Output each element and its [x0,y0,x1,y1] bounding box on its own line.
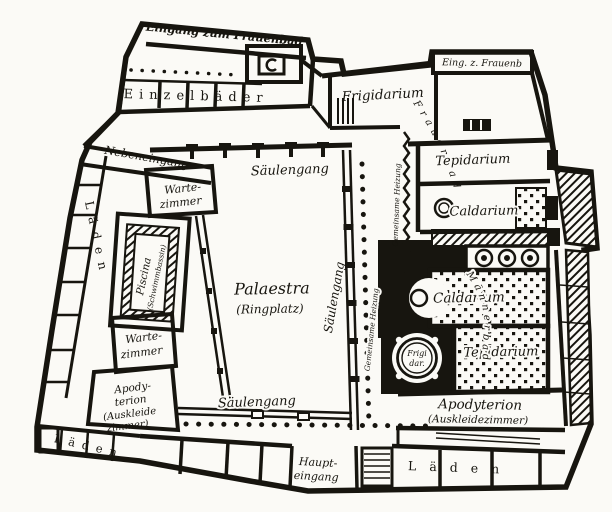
caldarium-frauen-hypocaust [516,188,546,228]
label-tepidarium-frauen: Tepidarium [435,152,510,170]
stylobate-post [298,413,309,420]
label-haupteingang-2: eingang [293,469,338,484]
furnace-block [432,246,466,270]
labrum-basin [411,290,427,306]
label-frigidar-1: Frigi [406,349,427,358]
haupteingang-wall [290,446,292,487]
floor-plan-svg: Eingang zum Frauenbad Einzelbäder Eing. … [0,0,612,512]
niche [432,373,438,379]
label-palaestra: Palaestra [233,278,310,298]
niche [396,337,402,343]
haupteingang-wall [356,446,357,489]
label-saeulengang-top: Säulengang [251,162,330,180]
label-apodyterion-maenner-1: Apodyterion [436,396,522,413]
label-saeulengang-bottom: Säulengang [218,394,297,412]
label-frigidar-2: dar. [409,359,424,368]
bath-floor-plan: Eingang zum Frauenbad Einzelbäder Eing. … [0,0,612,512]
frigidar-rotunda [392,333,442,383]
entry-stair-mark [463,119,491,131]
hatched-band-right-edge [566,250,591,425]
label-caldarium-frauen: Caldarium [449,203,518,219]
label-haupteingang-1: Haupt- [298,455,338,470]
label-caldarium-maenner: Caldarium [433,289,505,306]
label-ringplatz: (Ringplatz) [236,301,304,316]
niche [396,373,402,379]
stylobate-post [252,411,263,418]
niche [432,337,438,343]
label-apodyterion-maenner-2: (Auskleidezimmer) [428,413,528,427]
wall-block [547,150,558,170]
label-tepidarium-maenner: Tepidarium [463,344,538,360]
wall-block [547,196,558,220]
label-eing-z-frauenb: Eing. z. Frauenb [441,57,522,69]
